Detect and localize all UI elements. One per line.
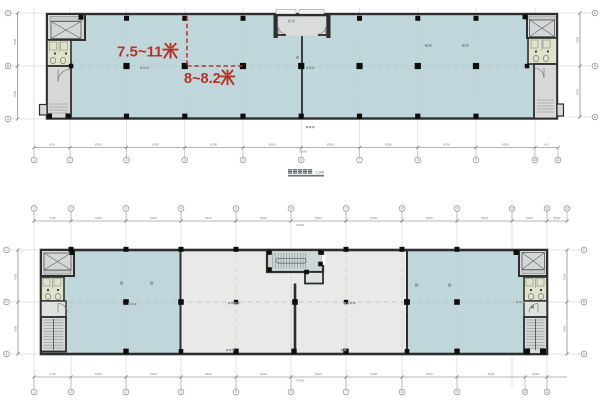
svg-text:8100: 8100 (150, 372, 157, 376)
svg-text:8100: 8100 (150, 216, 157, 220)
svg-text:7: 7 (359, 158, 361, 162)
svg-text:10: 10 (533, 158, 537, 162)
svg-text:6: 6 (300, 158, 302, 162)
svg-text:7500: 7500 (575, 36, 579, 43)
svg-text:8250: 8250 (327, 143, 334, 147)
svg-text:8100: 8100 (481, 216, 488, 220)
svg-text:8~8.2: 8~8.2 (184, 71, 221, 87)
svg-text:12: 12 (565, 207, 569, 211)
svg-text:2: 2 (69, 158, 71, 162)
svg-text:7: 7 (345, 390, 347, 394)
svg-text:11: 11 (545, 207, 549, 211)
svg-text:8100: 8100 (426, 372, 433, 376)
svg-text:B: B (594, 64, 596, 68)
svg-text:4: 4 (180, 390, 182, 394)
svg-text:75600: 75600 (299, 150, 308, 154)
svg-text:8100: 8100 (488, 372, 495, 376)
svg-text:4: 4 (180, 207, 182, 211)
svg-text:8100: 8100 (260, 372, 267, 376)
svg-text:75600: 75600 (296, 223, 305, 227)
svg-text:4.95: 4.95 (50, 372, 56, 376)
svg-text:8100: 8100 (315, 372, 322, 376)
svg-text:8100: 8100 (95, 216, 102, 220)
svg-text:8250: 8250 (152, 143, 159, 147)
svg-text:8250: 8250 (385, 143, 392, 147)
svg-text:8250: 8250 (269, 143, 276, 147)
svg-text:1: 1 (33, 390, 35, 394)
svg-text:5: 5 (235, 390, 237, 394)
svg-text:75600: 75600 (296, 379, 305, 383)
svg-text:8: 8 (417, 158, 419, 162)
svg-text:B: B (5, 300, 7, 304)
svg-text:8100: 8100 (205, 372, 212, 376)
svg-text:6: 6 (290, 207, 292, 211)
svg-text:7: 7 (345, 207, 347, 211)
svg-text:11: 11 (556, 158, 560, 162)
svg-text:4: 4 (184, 158, 186, 162)
svg-text:5: 5 (235, 207, 237, 211)
svg-text:10: 10 (523, 390, 527, 394)
svg-text:4.95: 4.95 (50, 216, 56, 220)
svg-text:5: 5 (242, 158, 244, 162)
svg-text:4.95: 4.95 (49, 143, 55, 147)
svg-text:5250: 5250 (554, 216, 561, 220)
svg-text:7500: 7500 (562, 325, 566, 332)
svg-text:8100: 8100 (533, 372, 540, 376)
svg-text:1:100: 1:100 (315, 171, 324, 175)
svg-text:2: 2 (70, 390, 72, 394)
svg-text:8100: 8100 (371, 372, 378, 376)
svg-text:3: 3 (125, 390, 127, 394)
svg-text:4.5: 4.5 (544, 143, 549, 147)
svg-text:9: 9 (456, 390, 458, 394)
svg-text:8250: 8250 (211, 143, 218, 147)
svg-text:8250: 8250 (95, 143, 102, 147)
svg-text:2: 2 (70, 207, 72, 211)
svg-text:8100: 8100 (371, 216, 378, 220)
svg-text:7500: 7500 (13, 38, 17, 45)
svg-text:1: 1 (33, 158, 35, 162)
svg-text:7500: 7500 (13, 273, 17, 280)
svg-text:10: 10 (510, 207, 514, 211)
svg-text:3: 3 (126, 158, 128, 162)
svg-text:8250: 8250 (444, 143, 451, 147)
svg-text:7500: 7500 (575, 88, 579, 95)
svg-text:8100: 8100 (260, 216, 267, 220)
svg-text:6: 6 (290, 390, 292, 394)
svg-text:9: 9 (456, 207, 458, 211)
svg-text:1: 1 (33, 207, 35, 211)
svg-text:B: B (7, 64, 9, 68)
svg-text:8250: 8250 (502, 143, 509, 147)
svg-text:8: 8 (401, 207, 403, 211)
svg-text:7500: 7500 (13, 325, 17, 332)
svg-text:7.5~11: 7.5~11 (117, 44, 162, 61)
svg-text:11: 11 (545, 390, 549, 394)
svg-text:8100: 8100 (426, 216, 433, 220)
svg-text:9: 9 (475, 158, 477, 162)
svg-text:8: 8 (401, 390, 403, 394)
svg-text:3: 3 (125, 207, 127, 211)
svg-text:7500: 7500 (562, 273, 566, 280)
svg-text:8100: 8100 (526, 216, 533, 220)
svg-text:7500: 7500 (13, 90, 17, 97)
svg-text:8100: 8100 (205, 216, 212, 220)
svg-text:B: B (583, 300, 585, 304)
svg-text:8100: 8100 (315, 216, 322, 220)
svg-text:8100: 8100 (95, 372, 102, 376)
